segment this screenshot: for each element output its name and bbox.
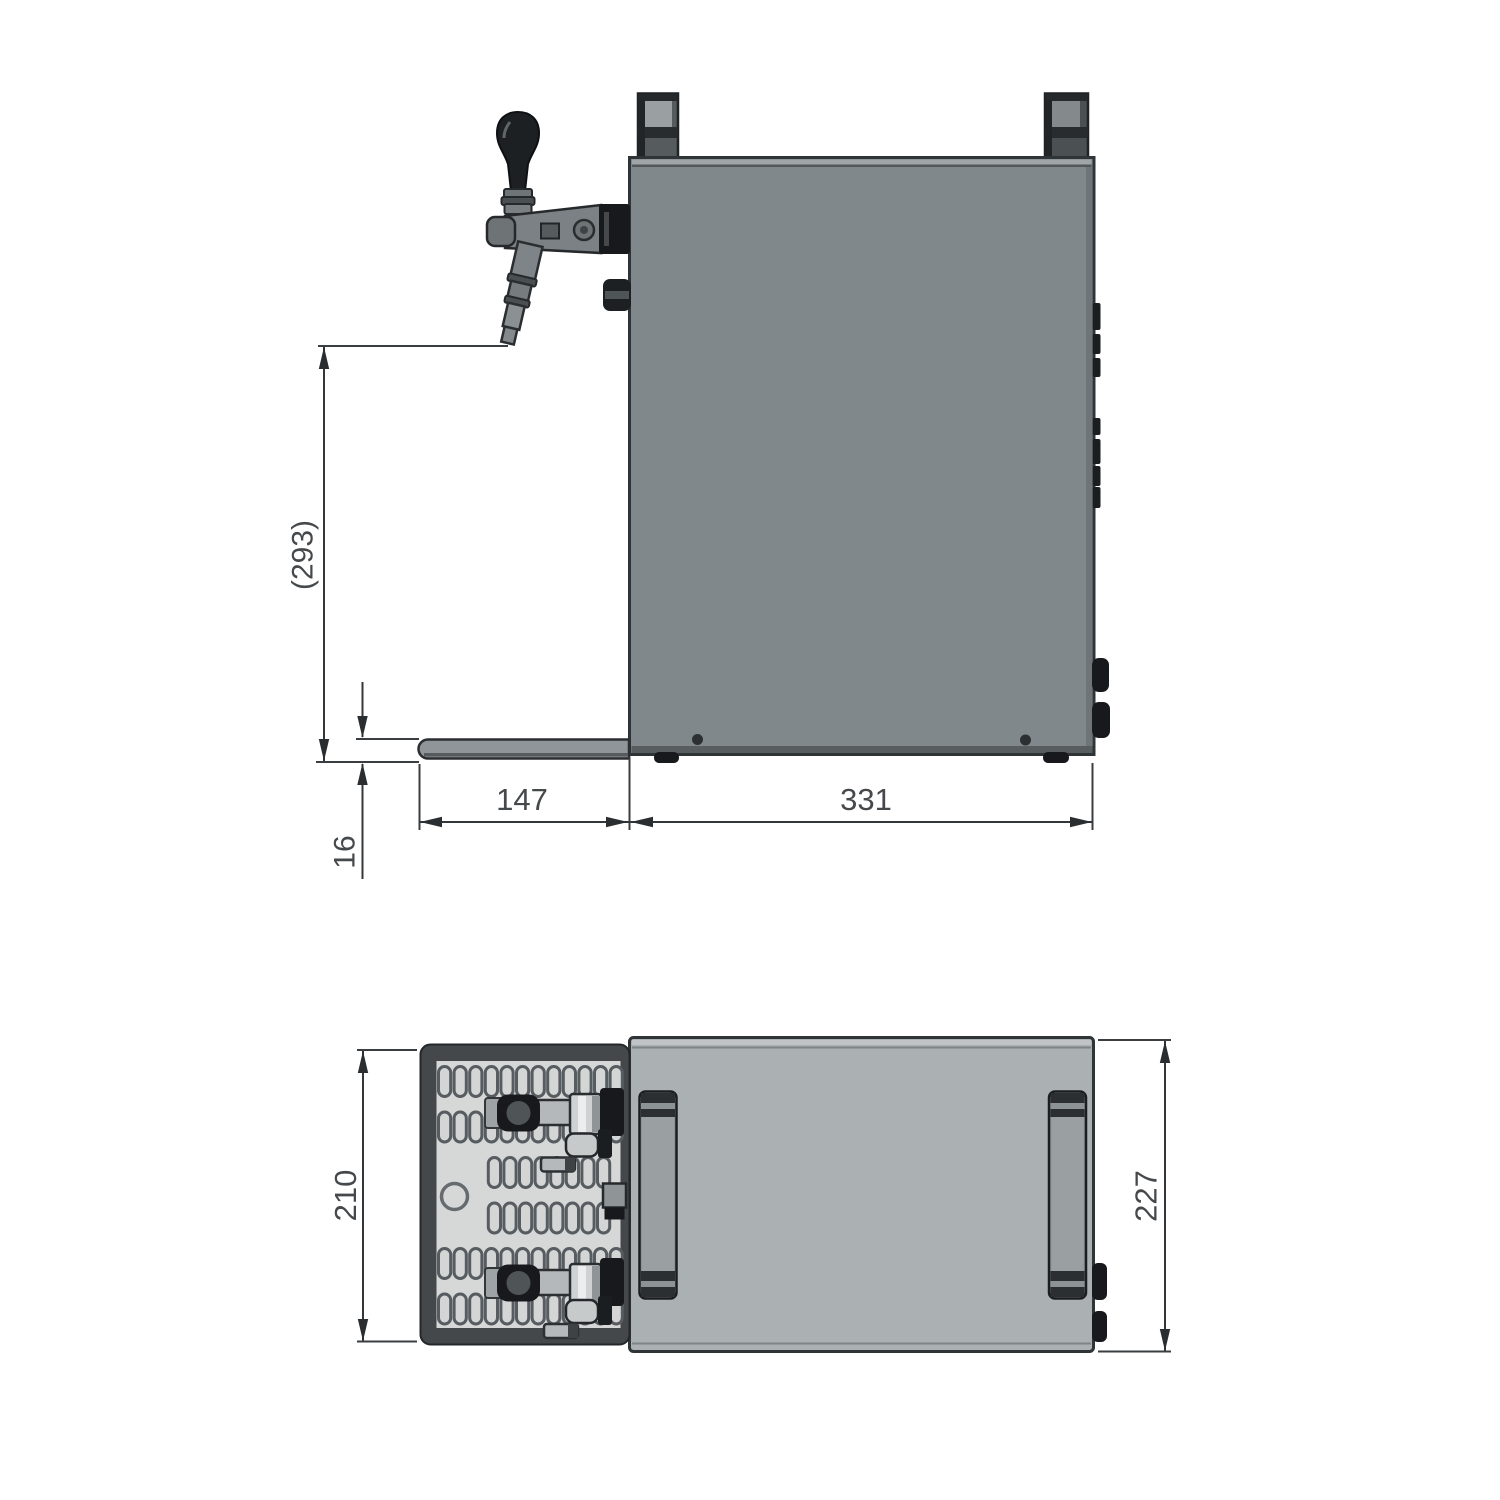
svg-text:227: 227 <box>1129 1170 1164 1222</box>
svg-text:331: 331 <box>840 782 892 817</box>
svg-text:16: 16 <box>329 835 362 868</box>
svg-text:147: 147 <box>496 782 548 817</box>
svg-text:210: 210 <box>328 1170 363 1222</box>
svg-text:(293): (293) <box>287 520 320 590</box>
